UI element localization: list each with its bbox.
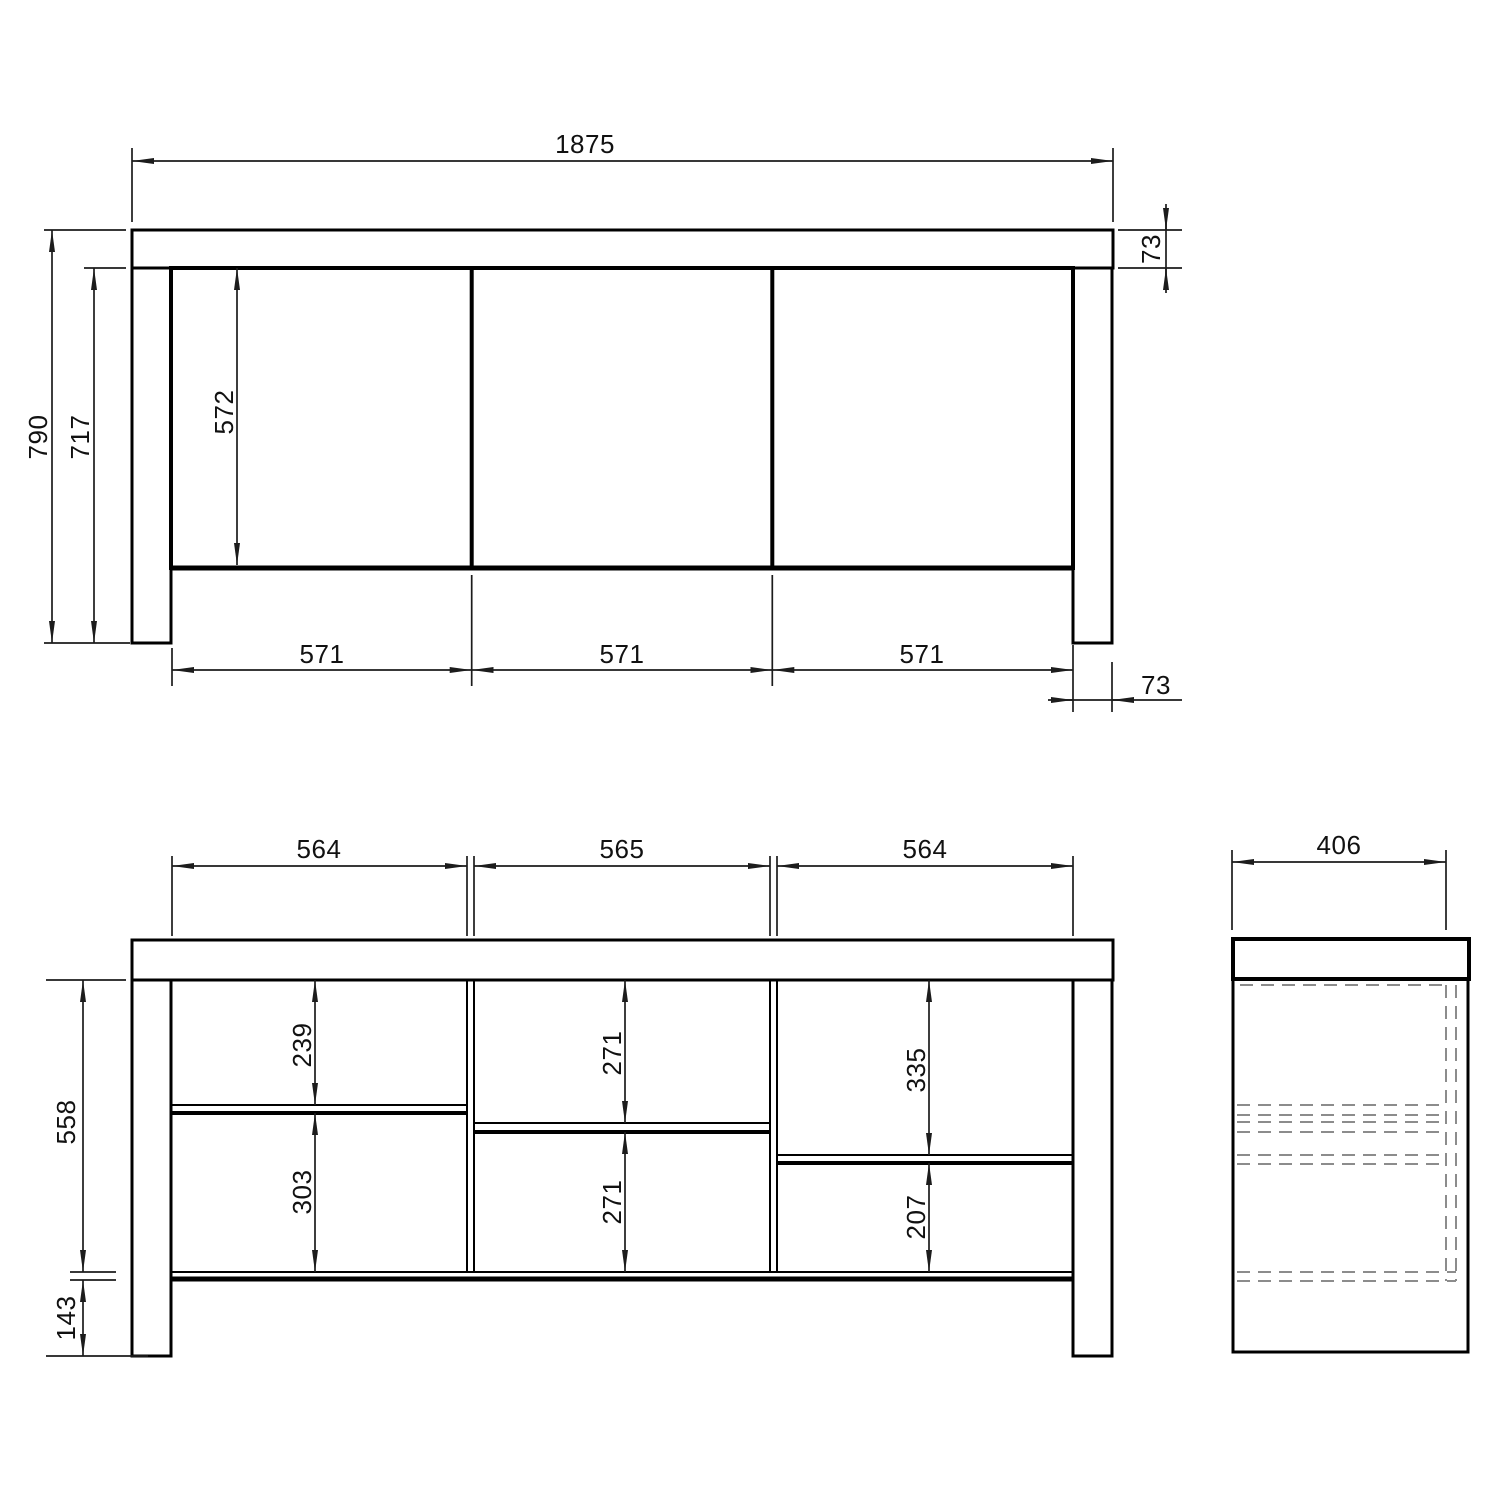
dim-bay3-heights: 335 207 [901, 980, 931, 1272]
side-top-panel [1233, 939, 1469, 979]
left-leg [132, 980, 171, 1356]
dim-label-door-height: 572 [209, 390, 239, 435]
front-doors [171, 268, 1073, 568]
dim-label-door-width-1: 571 [300, 639, 345, 669]
dim-label-top-thickness: 73 [1136, 234, 1166, 264]
side-body [1233, 979, 1468, 1352]
dim-label-bay2-lower: 271 [597, 1180, 627, 1225]
dim-door-widths: 571 571 571 [172, 575, 1073, 712]
dim-interior-height: 558 [46, 980, 126, 1280]
dim-bay1-heights: 239 303 [287, 980, 317, 1272]
front-view-doors: 1875 73 790 717 572 [23, 129, 1182, 712]
dim-label-bay-width-2: 565 [600, 834, 645, 864]
dim-label-depth: 406 [1317, 830, 1362, 860]
dim-depth: 406 [1232, 830, 1446, 930]
dim-label-bay3-lower: 207 [901, 1195, 931, 1240]
dim-label-bay-width-3: 564 [903, 834, 948, 864]
interior-cabinet-outline [132, 940, 1113, 1356]
door-band [171, 268, 1073, 568]
dim-label-interior-height: 558 [51, 1100, 81, 1145]
dim-label-overall-width: 1875 [555, 129, 615, 159]
front-view-interior: 564 565 564 558 143 239 303 271 271 [46, 834, 1113, 1356]
dim-label-base-height: 143 [51, 1296, 81, 1341]
dim-label-bay1-upper: 239 [287, 1023, 317, 1068]
dim-label-door-width-3: 571 [900, 639, 945, 669]
dim-top-thickness: 73 [1118, 204, 1182, 293]
top-panel [132, 230, 1113, 268]
dim-overall-width: 1875 [132, 129, 1113, 222]
dim-label-door-width-2: 571 [600, 639, 645, 669]
dim-label-bay-width-1: 564 [297, 834, 342, 864]
dim-label-under-top-height: 717 [65, 415, 95, 460]
dim-label-bay3-upper: 335 [901, 1048, 931, 1093]
furniture-technical-drawing: 1875 73 790 717 572 [0, 0, 1500, 1500]
drawing-canvas: 1875 73 790 717 572 [0, 0, 1500, 1500]
dim-label-bay1-lower: 303 [287, 1170, 317, 1215]
right-leg [1073, 268, 1112, 643]
dim-under-top-height: 717 [65, 268, 126, 643]
left-leg [132, 268, 171, 643]
top-panel [132, 940, 1113, 980]
right-leg [1073, 980, 1112, 1356]
interior-partitions [467, 980, 777, 1272]
dim-label-leg-width: 73 [1141, 670, 1171, 700]
dim-bay-widths: 564 565 564 [172, 834, 1073, 936]
side-view: 406 [1232, 830, 1469, 1352]
dim-label-overall-height: 790 [23, 415, 53, 460]
dim-label-bay2-upper: 271 [597, 1031, 627, 1076]
dim-bay2-heights: 271 271 [597, 980, 627, 1272]
